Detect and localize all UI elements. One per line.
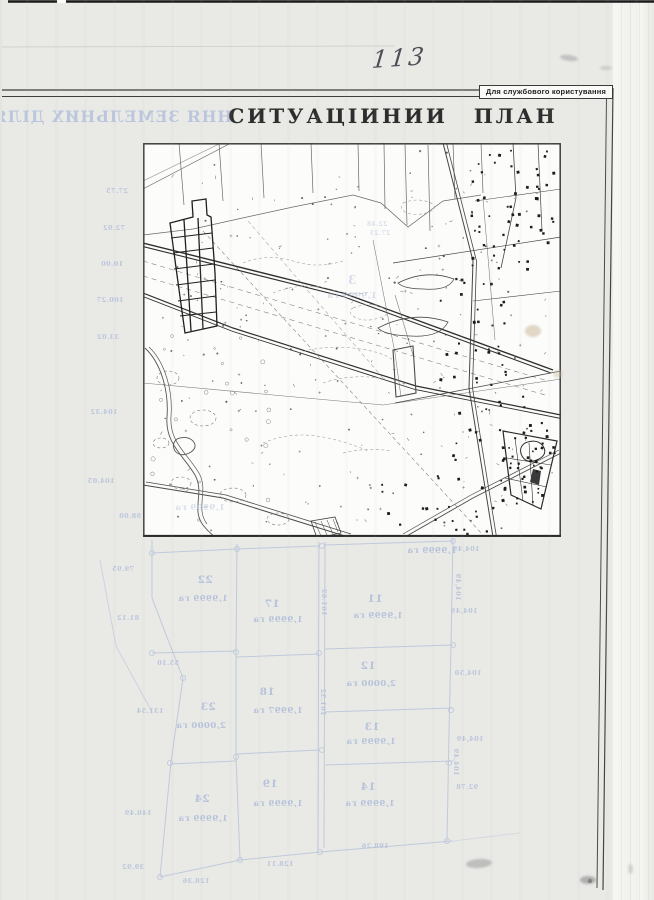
bleed-measurement-label: 104,49 bbox=[456, 735, 483, 743]
bleed-measurement-label: 104,49 bbox=[452, 545, 479, 553]
bleed-measurement-label: 10.00 bbox=[101, 260, 123, 268]
bleed-parcel-label: 1,9999 га bbox=[346, 737, 396, 747]
scanned-page: 221,9999 га171,9999 га111,9999 га122,000… bbox=[0, 0, 654, 900]
bleed-parcel-label: 11 bbox=[367, 593, 382, 605]
classification-label: Для службового користування bbox=[479, 85, 613, 99]
bleed-measurement-label: 100.27 bbox=[96, 296, 123, 304]
bleed-parcel-label: 1,9999 га bbox=[178, 594, 228, 604]
bleed-parcel-label: 1,9999 га bbox=[178, 814, 228, 824]
bleed-measurement-label: 104,49 bbox=[454, 573, 462, 600]
scan-right-margin-band bbox=[612, 0, 654, 900]
bleed-measurement-label: 39.92 bbox=[122, 863, 144, 871]
bleed-measurement-label: 128.36 bbox=[182, 877, 209, 885]
bleed-measurement-label: 131.54 bbox=[136, 707, 163, 715]
situational-map bbox=[143, 143, 561, 537]
bleed-parcel-label: 1,9999 га bbox=[345, 799, 395, 809]
bleed-measurement-label: 161.52 bbox=[319, 688, 327, 715]
bleed-measurement-label: 104.32 bbox=[90, 408, 117, 416]
bleed-measurement-label: 198.26 bbox=[361, 842, 388, 850]
bleed-parcel-label: 1,9999 га bbox=[407, 546, 457, 556]
bleed-parcel-label: 2,0000 га bbox=[346, 679, 396, 689]
bleed-measurement-label: 55.10 bbox=[157, 659, 179, 667]
bleed-measurement-label: 161.62 bbox=[320, 588, 328, 615]
handwritten-page-number: 113 bbox=[371, 42, 429, 74]
bleed-measurement-label: 128.11 bbox=[266, 860, 293, 868]
bleed-parcel-label: 1,9999 га bbox=[353, 611, 403, 621]
bleed-parcel-label: 23 bbox=[200, 701, 215, 713]
bleed-measurement-label: 140.49 bbox=[124, 809, 151, 817]
bleed-parcel-label: 14 bbox=[360, 781, 375, 793]
bleed-parcel-label: 17 bbox=[264, 598, 279, 610]
bleed-parcel-label: 18 bbox=[259, 686, 274, 698]
bleed-parcel-label: 22 bbox=[197, 574, 212, 586]
bleed-parcel-label: 12 bbox=[360, 660, 375, 672]
bleed-parcel-label: 1,9999 га bbox=[253, 799, 303, 809]
bleed-parcel-label: 1,9997 га bbox=[253, 706, 303, 716]
scan-left-edge-shade bbox=[0, 0, 2, 900]
bleed-parcel-label: 1,9999 га bbox=[253, 615, 303, 625]
bleed-measurement-label: 104,49 bbox=[450, 607, 477, 615]
bleed-measurement-label: 104.05 bbox=[87, 477, 114, 485]
bleed-parcel-label: 13 bbox=[364, 721, 379, 733]
bleed-measurement-label: 27.75 bbox=[106, 187, 128, 195]
bleed-measurement-label: 33.02 bbox=[97, 333, 119, 341]
bleed-measurement-label: 72.92 bbox=[103, 224, 125, 232]
bleed-parcel-label: 24 bbox=[194, 793, 209, 805]
page-title: СИТУАЦІИНИИ ПЛАН bbox=[228, 104, 558, 128]
bleed-measurement-label: 81.12 bbox=[117, 614, 139, 622]
bleed-measurement-label: 104,49 bbox=[452, 748, 460, 775]
bleed-parcel-label: 19 bbox=[262, 778, 277, 790]
bleed-measurement-label: 92.78 bbox=[456, 783, 478, 791]
bleed-parcel-label: 2,0000 га bbox=[176, 721, 226, 731]
bleed-measurement-label: 98.00 bbox=[119, 512, 141, 520]
bleed-measurement-label: 104,50 bbox=[454, 669, 481, 677]
bleed-measurement-label: 79.95 bbox=[112, 565, 134, 573]
